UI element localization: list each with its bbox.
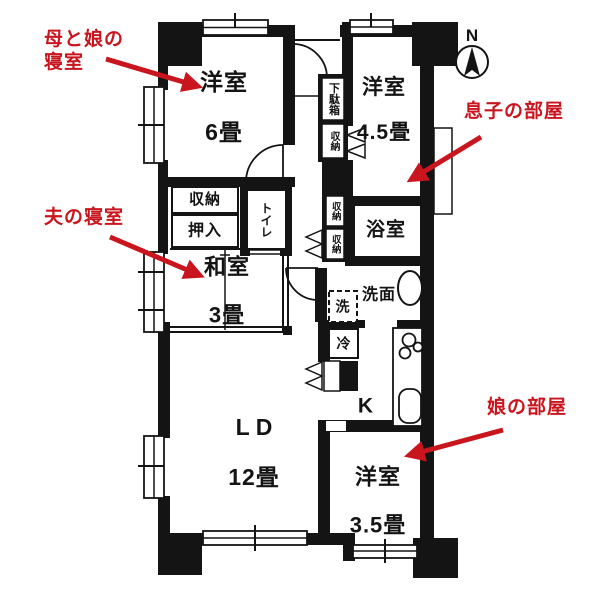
label-shoe-box: 下駄箱 xyxy=(328,83,339,116)
room-western35-name: 洋室 xyxy=(355,464,401,489)
kitchen-sink xyxy=(399,389,421,423)
room-label-japanese3: 和室 3畳 xyxy=(204,255,250,326)
room-western35-size: 3.5畳 xyxy=(350,512,407,537)
room-japanese3-name: 和室 xyxy=(204,254,250,279)
room-label-western45: 洋室 4.5畳 xyxy=(357,77,411,145)
label-entry-closet: 収納 xyxy=(328,131,338,151)
annotation-daughter-room: 娘の部屋 xyxy=(487,396,567,419)
annotation-husband-bedroom: 夫の寝室 xyxy=(44,206,124,229)
room-western6-name: 洋室 xyxy=(200,69,248,95)
room-label-living: LD 12畳 xyxy=(228,415,280,489)
label-fridge: 冷 xyxy=(337,336,352,351)
annotation-mother-bedroom: 母と娘の 寝室 xyxy=(44,28,124,74)
compass-north-label: N xyxy=(466,27,478,45)
room-living-name: LD xyxy=(236,414,279,440)
room-western45-size: 4.5畳 xyxy=(357,121,411,144)
stove-burner xyxy=(400,348,411,359)
annotation-son-room: 息子の部屋 xyxy=(464,100,564,123)
label-closet: 収納 xyxy=(189,192,221,208)
floorplan-page: 洋室 6畳 洋室 4.5畳 和室 3畳 LD 12畳 洋室 3.5畳 浴室 K … xyxy=(0,0,600,600)
floorplan-drawing xyxy=(0,0,600,600)
compass-icon xyxy=(456,46,488,78)
label-hall-closet-2: 収納 xyxy=(330,235,340,254)
washbasin xyxy=(398,271,422,305)
room-label-bath: 浴室 xyxy=(366,221,406,242)
label-washer: 洗 xyxy=(336,299,351,314)
room-label-kitchen: K xyxy=(358,396,374,419)
room-label-western35: 洋室 3.5畳 xyxy=(350,465,407,536)
label-toilet: トイレ xyxy=(260,202,272,238)
room-living-size: 12畳 xyxy=(228,463,280,489)
room-japanese3-size: 3畳 xyxy=(209,302,245,327)
label-hall-closet-1: 収納 xyxy=(330,202,340,221)
room-western6-size: 6畳 xyxy=(205,118,243,144)
label-futon-closet: 押入 xyxy=(188,222,222,239)
room-label-western6: 洋室 6畳 xyxy=(200,70,248,144)
stove-burner xyxy=(414,343,423,352)
room-western45-name: 洋室 xyxy=(362,76,406,99)
label-washroom: 洗面 xyxy=(362,286,396,303)
